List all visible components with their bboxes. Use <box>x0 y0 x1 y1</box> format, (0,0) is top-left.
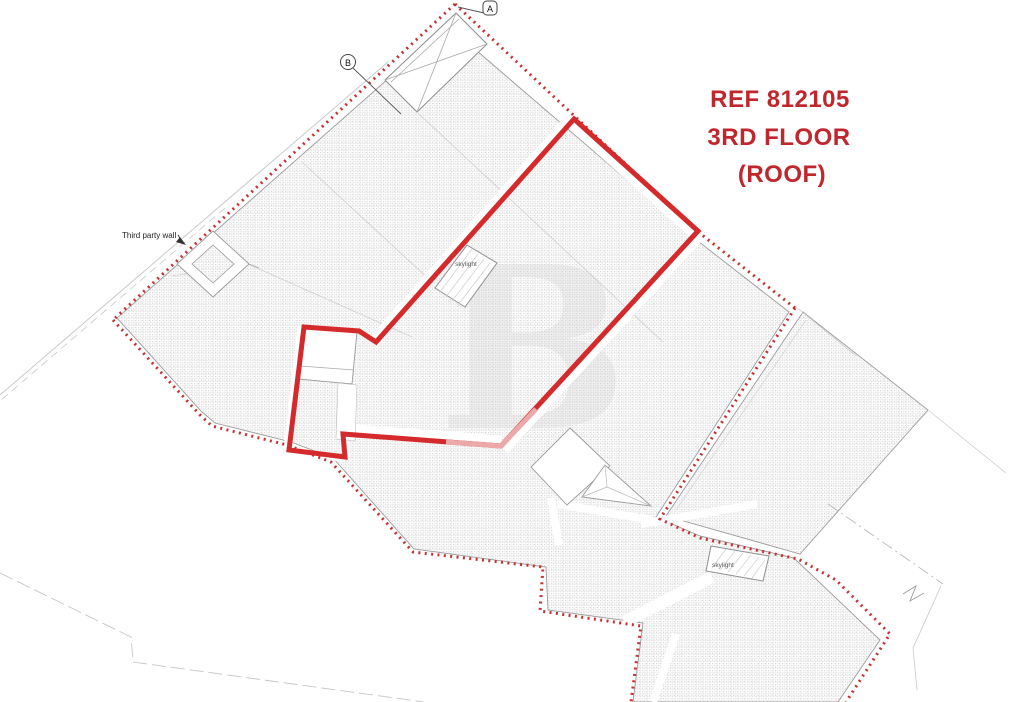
roof-plan-page: B skylight <box>0 0 1024 702</box>
skylight-lower-label: skylight <box>712 562 734 569</box>
title-block: REF 812105 3RD FLOOR (ROOF) <box>707 86 850 188</box>
skylight-upper-label: skylight <box>455 261 477 268</box>
title-roof: (ROOF) <box>738 161 826 188</box>
roof-plan-drawing: B skylight <box>0 0 1024 702</box>
title-ref: REF 812105 <box>710 86 850 113</box>
section-marker-a: A <box>458 1 497 15</box>
section-marker-a-letter: A <box>487 4 493 14</box>
third-party-wall-label: Third party wall <box>122 231 176 240</box>
third-party-wall-annotation: Third party wall <box>122 231 186 245</box>
title-floor: 3RD FLOOR <box>707 124 850 151</box>
section-marker-b-letter: B <box>345 58 351 68</box>
